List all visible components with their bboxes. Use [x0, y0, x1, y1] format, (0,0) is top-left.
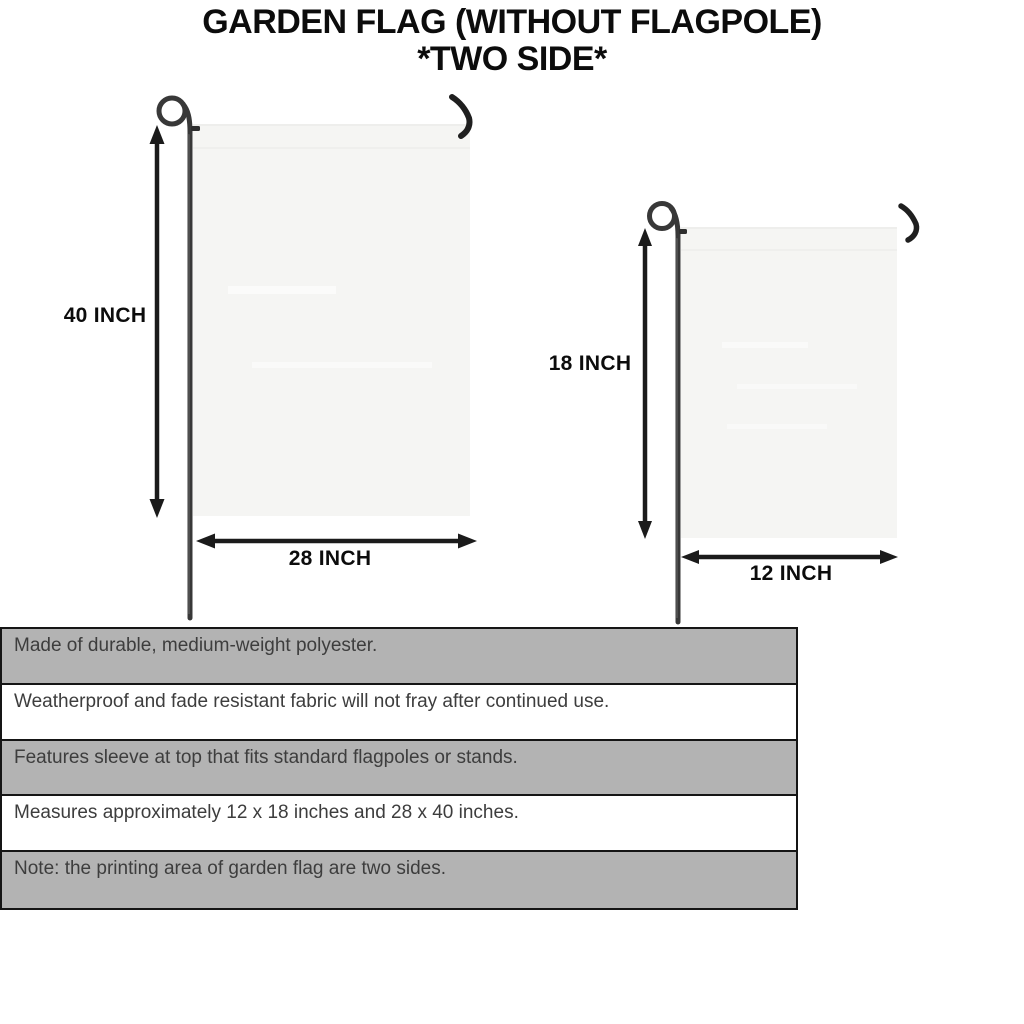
large-flag-fabric [193, 124, 470, 516]
feature-text: Features sleeve at top that fits standar… [14, 747, 518, 768]
feature-row-measures: Measures approximately 12 x 18 inches an… [2, 796, 796, 852]
small-flag-crease [737, 384, 857, 389]
feature-text: Note: the printing area of garden flag a… [14, 858, 446, 879]
small-flag-diagram [638, 204, 917, 623]
large-flagpole-loop-icon [159, 98, 185, 124]
small-flagpole-hook-icon [901, 206, 917, 240]
feature-text: Made of durable, medium-weight polyester… [14, 635, 377, 656]
feature-text: Weatherproof and fade resistant fabric w… [14, 691, 609, 712]
large-flag-height-label: 40 INCH [55, 304, 155, 328]
small-flag-fabric [681, 227, 897, 538]
features-table: Made of durable, medium-weight polyester… [0, 627, 798, 910]
page: GARDEN FLAG (WITHOUT FLAGPOLE) *TWO SIDE… [0, 0, 1024, 1024]
feature-row-sleeve: Features sleeve at top that fits standar… [2, 741, 796, 797]
feature-row-material: Made of durable, medium-weight polyester… [2, 629, 796, 685]
small-height-arrow [638, 228, 652, 539]
large-flagpole-clip [191, 126, 200, 131]
large-flag-crease [252, 362, 432, 368]
small-flagpole-loop-icon [650, 204, 675, 229]
small-flag-width-label: 12 INCH [689, 562, 893, 586]
large-flag-crease [228, 286, 336, 294]
small-flag-crease [727, 424, 827, 429]
feature-row-note: Note: the printing area of garden flag a… [2, 852, 796, 908]
small-flag-crease [722, 342, 808, 348]
small-flag-height-label: 18 INCH [490, 352, 690, 376]
large-flag-diagram [150, 97, 478, 618]
small-flagpole-clip [679, 229, 687, 234]
large-flag-width-label: 28 INCH [228, 547, 432, 571]
feature-row-weatherproof: Weatherproof and fade resistant fabric w… [2, 685, 796, 741]
feature-text: Measures approximately 12 x 18 inches an… [14, 802, 519, 823]
